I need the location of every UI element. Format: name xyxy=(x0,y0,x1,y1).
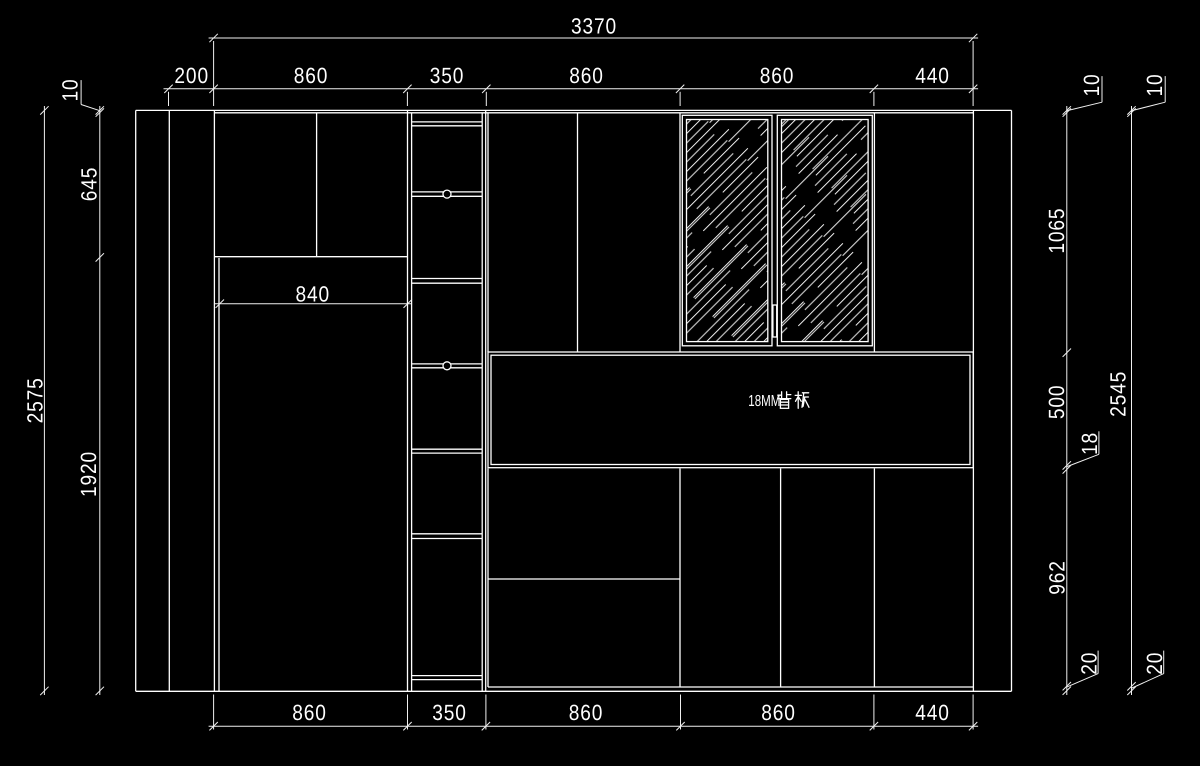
svg-text:350: 350 xyxy=(432,700,467,725)
svg-text:860: 860 xyxy=(761,700,796,725)
svg-text:860: 860 xyxy=(294,63,329,88)
svg-text:200: 200 xyxy=(174,63,209,88)
svg-text:860: 860 xyxy=(760,63,795,88)
svg-text:3370: 3370 xyxy=(571,14,617,39)
svg-text:1065: 1065 xyxy=(1044,208,1069,254)
svg-text:2575: 2575 xyxy=(23,377,48,423)
svg-text:440: 440 xyxy=(915,63,950,88)
svg-text:860: 860 xyxy=(292,700,327,725)
svg-text:2545: 2545 xyxy=(1105,371,1130,417)
svg-text:500: 500 xyxy=(1044,385,1069,420)
svg-text:860: 860 xyxy=(569,700,604,725)
svg-text:645: 645 xyxy=(77,167,102,202)
svg-text:18: 18 xyxy=(1077,432,1102,455)
svg-text:840: 840 xyxy=(296,282,331,307)
svg-text:350: 350 xyxy=(430,63,465,88)
svg-text:1920: 1920 xyxy=(76,451,101,497)
svg-text:20: 20 xyxy=(1142,652,1167,675)
svg-text:10: 10 xyxy=(58,78,83,101)
svg-text:10: 10 xyxy=(1079,73,1104,96)
svg-text:860: 860 xyxy=(569,63,604,88)
svg-text:962: 962 xyxy=(1045,560,1070,595)
svg-text:10: 10 xyxy=(1142,73,1167,96)
svg-text:18MM: 18MM xyxy=(748,393,780,410)
svg-text:20: 20 xyxy=(1077,652,1102,675)
svg-text:440: 440 xyxy=(915,700,950,725)
